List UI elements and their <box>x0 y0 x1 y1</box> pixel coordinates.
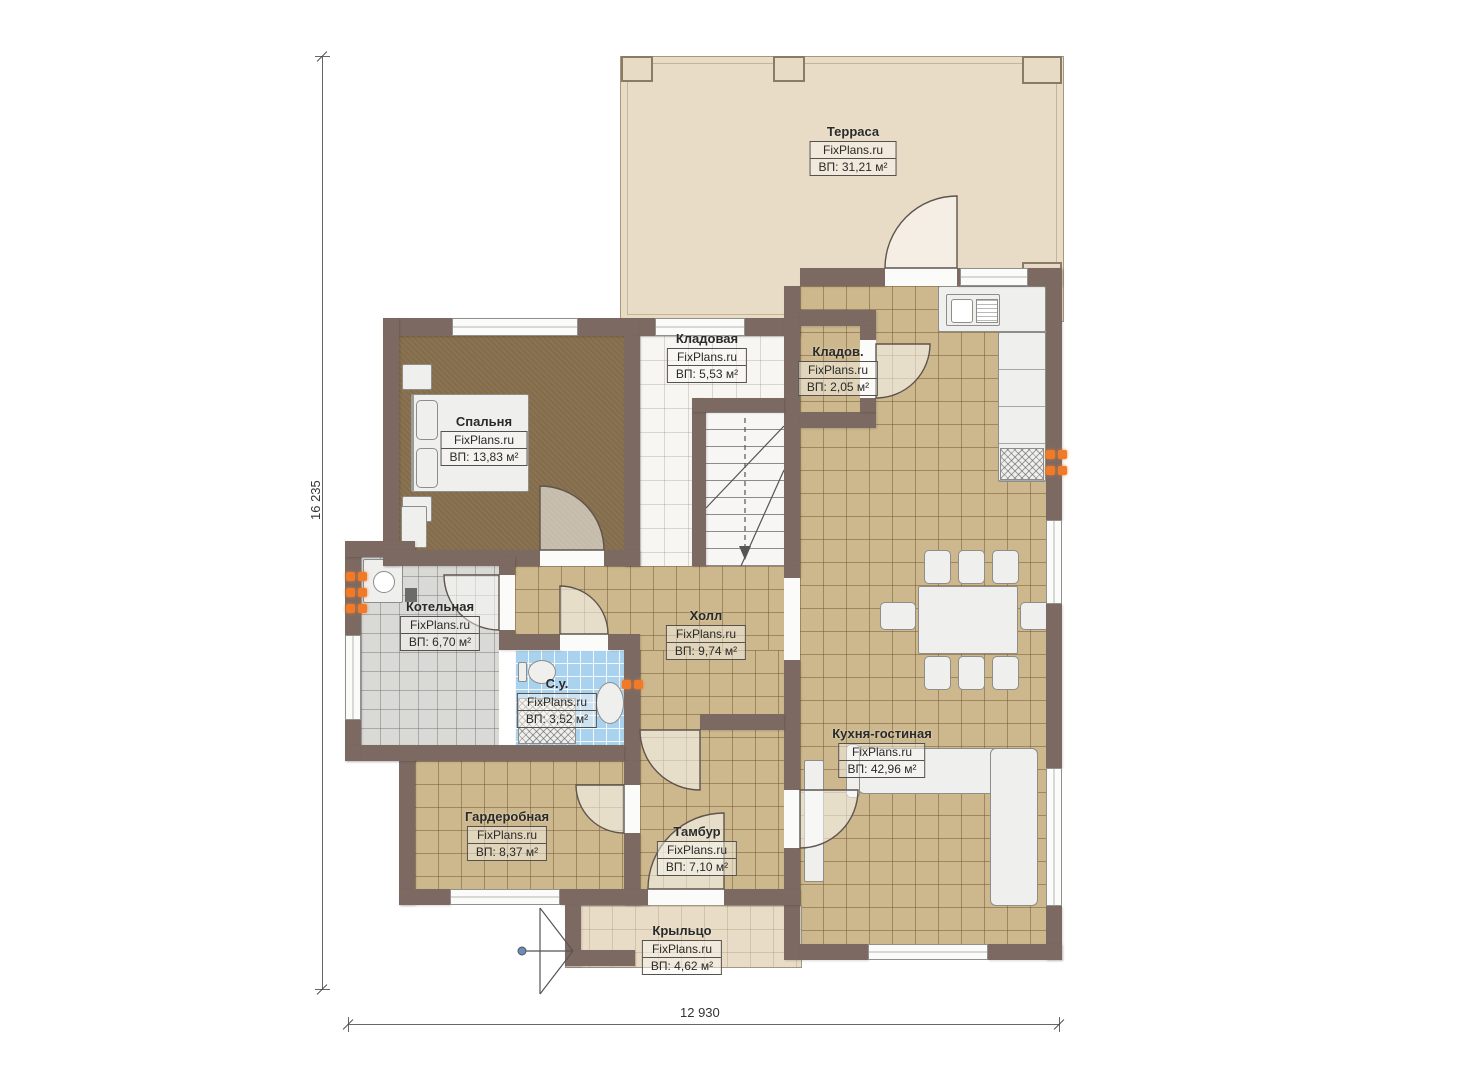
radiator <box>1046 450 1067 475</box>
pillow <box>416 448 438 488</box>
wall-segment <box>499 630 515 650</box>
chair <box>992 550 1019 584</box>
room-info-box: FixPlans.ru ВП: 2,05 м² <box>798 361 878 396</box>
wall-segment <box>361 745 624 761</box>
stove <box>1000 448 1044 480</box>
window <box>450 889 560 905</box>
room-area: ВП: 9,74 м² <box>667 643 745 659</box>
room-area: ВП: 3,52 м² <box>518 711 596 727</box>
watermark: FixPlans.ru <box>468 827 546 844</box>
room-name: С.у. <box>517 676 597 691</box>
dimension-label-width: 12 930 <box>680 1005 720 1020</box>
washer-drum <box>373 571 395 593</box>
chair <box>958 550 985 584</box>
chair <box>924 550 951 584</box>
sink-basin <box>951 299 973 323</box>
wall-segment <box>399 745 415 905</box>
room-label-hall: Холл FixPlans.ru ВП: 9,74 м² <box>666 608 746 660</box>
wall-segment <box>784 905 800 960</box>
dimension-line-vertical <box>322 56 323 990</box>
sofa <box>990 748 1038 906</box>
room-name: Терраса <box>810 124 897 139</box>
terrace-column <box>773 56 805 82</box>
wall-segment <box>860 326 876 340</box>
room-info-box: FixPlans.ru ВП: 13,83 м² <box>441 431 528 466</box>
door-threshold <box>499 575 515 630</box>
wall-segment <box>784 566 800 578</box>
watermark: FixPlans.ru <box>643 941 721 958</box>
wall-segment <box>988 944 1062 960</box>
room-label-kitchen: Кухня-гостиная FixPlans.ru ВП: 42,96 м² <box>832 726 932 778</box>
wall-segment <box>1046 268 1062 520</box>
terrace-column <box>621 56 653 82</box>
room-name: Гардеробная <box>465 809 549 824</box>
room-info-box: FixPlans.ru ВП: 8,37 м² <box>467 826 547 861</box>
room-name: Котельная <box>400 599 480 614</box>
room-label-bathroom: С.у. FixPlans.ru ВП: 3,52 м² <box>517 676 597 728</box>
room-label-storage: Кладовая FixPlans.ru ВП: 5,53 м² <box>667 331 747 383</box>
dining-table <box>918 586 1018 654</box>
dimension-label-height: 16 235 <box>308 480 323 520</box>
wall-segment <box>565 950 635 966</box>
room-area: ВП: 6,70 м² <box>401 634 479 650</box>
room-label-terrace: Терраса FixPlans.ru ВП: 31,21 м² <box>810 124 897 176</box>
radiator <box>622 680 643 689</box>
dimension-line-horizontal <box>348 1024 1060 1025</box>
wall-segment <box>700 714 784 730</box>
wall-segment <box>383 550 540 566</box>
pillow <box>416 400 438 440</box>
wall-segment <box>692 398 784 412</box>
room-info-box: FixPlans.ru ВП: 42,96 м² <box>839 743 926 778</box>
door-threshold <box>885 268 957 286</box>
room-area: ВП: 42,96 м² <box>840 761 925 777</box>
chair <box>992 656 1019 690</box>
room-area: ВП: 31,21 м² <box>811 159 896 175</box>
wall-segment <box>608 634 640 650</box>
wall-segment <box>800 412 876 428</box>
room-label-vestibule: Тамбур FixPlans.ru ВП: 7,10 м² <box>657 824 737 876</box>
tv-stand <box>804 760 824 882</box>
wall-segment <box>399 889 450 905</box>
wall-segment <box>800 310 876 326</box>
room-name: Кладовая <box>667 331 747 346</box>
staircase <box>706 412 784 566</box>
watermark: FixPlans.ru <box>442 432 527 449</box>
watermark: FixPlans.ru <box>518 694 596 711</box>
room-area: ВП: 8,37 м² <box>468 844 546 860</box>
window <box>345 635 361 720</box>
chair <box>958 656 985 690</box>
room-label-wardrobe: Гардеробная FixPlans.ru ВП: 8,37 м² <box>465 809 549 861</box>
wall-segment <box>624 761 640 785</box>
wall-segment <box>800 944 868 960</box>
door-threshold <box>784 790 800 848</box>
room-label-boiler: Котельная FixPlans.ru ВП: 6,70 м² <box>400 599 480 651</box>
room-area: ВП: 7,10 м² <box>658 859 736 875</box>
watermark: FixPlans.ru <box>667 626 745 643</box>
wall-segment <box>499 556 515 575</box>
room-name: Кухня-гостиная <box>832 726 932 741</box>
room-name: Тамбур <box>657 824 737 839</box>
room-name: Спальня <box>441 414 528 429</box>
wall-segment <box>1046 604 1062 768</box>
radiator <box>346 572 367 613</box>
sink-drainer <box>976 299 998 323</box>
wall-segment <box>784 660 800 790</box>
room-label-bedroom: Спальня FixPlans.ru ВП: 13,83 м² <box>441 414 528 466</box>
wall-segment <box>692 398 706 566</box>
wall-segment <box>784 286 800 318</box>
room-area: ВП: 5,53 м² <box>668 366 746 382</box>
window <box>452 318 578 336</box>
terrace-column <box>1022 56 1062 84</box>
room-info-box: FixPlans.ru ВП: 5,53 м² <box>667 348 747 383</box>
wall-segment <box>724 889 800 905</box>
room-name: Холл <box>666 608 746 623</box>
window <box>1046 520 1062 604</box>
watermark: FixPlans.ru <box>658 842 736 859</box>
floor-plan: Терраса FixPlans.ru ВП: 31,21 м² Кладова… <box>0 0 1474 1080</box>
room-info-box: FixPlans.ru ВП: 7,10 м² <box>657 841 737 876</box>
room-area: ВП: 13,83 м² <box>442 449 527 465</box>
room-area: ВП: 2,05 м² <box>799 379 877 395</box>
watermark: FixPlans.ru <box>799 362 877 379</box>
room-info-box: FixPlans.ru ВП: 3,52 м² <box>517 693 597 728</box>
chair <box>924 656 951 690</box>
wall-segment <box>624 650 640 761</box>
room-info-box: FixPlans.ru ВП: 6,70 м² <box>400 616 480 651</box>
wall-segment <box>383 318 399 566</box>
wall-segment <box>604 550 640 566</box>
window <box>960 268 1028 286</box>
room-name: Крыльцо <box>642 923 722 938</box>
room-label-porch: Крыльцо FixPlans.ru ВП: 4,62 м² <box>642 923 722 975</box>
nightstand <box>402 364 432 390</box>
watermark: FixPlans.ru <box>811 142 896 159</box>
room-area: ВП: 4,62 м² <box>643 958 721 974</box>
door-threshold <box>624 785 640 833</box>
door-threshold <box>540 550 604 566</box>
wall-segment <box>800 268 885 286</box>
wall-segment <box>560 889 648 905</box>
room-name: Кладов. <box>798 344 878 359</box>
wall-segment <box>624 336 640 566</box>
room-label-storage2: Кладов. FixPlans.ru ВП: 2,05 м² <box>798 344 878 396</box>
window <box>1046 768 1062 906</box>
washbasin <box>596 682 624 724</box>
wide-opening <box>784 578 800 660</box>
door-threshold <box>560 634 608 650</box>
window <box>868 944 988 960</box>
watermark: FixPlans.ru <box>840 744 925 761</box>
entrance-threshold <box>648 889 724 905</box>
room-info-box: FixPlans.ru ВП: 9,74 м² <box>666 625 746 660</box>
porch-level-mark <box>518 947 526 955</box>
wall-segment <box>515 634 560 650</box>
wall-segment <box>860 398 876 412</box>
room-info-box: FixPlans.ru ВП: 4,62 м² <box>642 940 722 975</box>
watermark: FixPlans.ru <box>668 349 746 366</box>
chair <box>880 602 916 630</box>
watermark: FixPlans.ru <box>401 617 479 634</box>
room-info-box: FixPlans.ru ВП: 31,21 м² <box>810 141 897 176</box>
